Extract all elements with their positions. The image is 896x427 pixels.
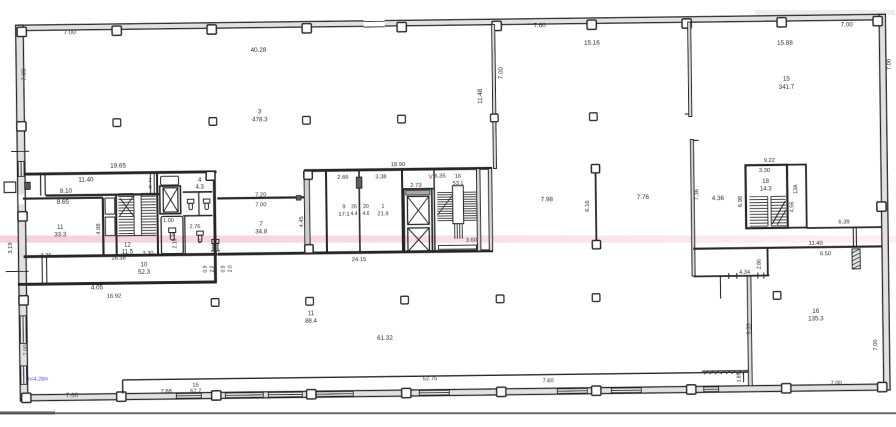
svg-text:135.3: 135.3 (808, 315, 824, 322)
svg-text:19.65: 19.65 (110, 163, 126, 170)
svg-text:2: 2 (149, 178, 152, 184)
svg-text:3.38: 3.38 (375, 174, 386, 180)
svg-text:24.15: 24.15 (352, 257, 367, 263)
svg-text:2.19: 2.19 (172, 238, 178, 248)
svg-text:7.60: 7.60 (534, 22, 547, 29)
svg-text:4.4: 4.4 (351, 211, 358, 217)
svg-text:1.00: 1.00 (163, 218, 174, 224)
svg-text:3.26: 3.26 (40, 253, 51, 259)
svg-text:6.50: 6.50 (820, 251, 831, 257)
svg-text:7.00: 7.00 (887, 59, 893, 70)
svg-text:21.9: 21.9 (377, 211, 388, 217)
svg-text:16: 16 (812, 308, 820, 315)
svg-text:3.19: 3.19 (8, 242, 14, 253)
svg-text:11: 11 (308, 311, 315, 317)
svg-text:52.75: 52.75 (423, 376, 438, 382)
svg-text:88.4: 88.4 (305, 319, 317, 325)
svg-text:10: 10 (140, 261, 148, 268)
svg-text:7.20: 7.20 (255, 192, 266, 198)
svg-text:0.9: 0.9 (221, 265, 227, 272)
svg-text:7.00: 7.00 (873, 339, 879, 350)
svg-text:14.3: 14.3 (760, 186, 772, 192)
svg-text:4.05: 4.05 (91, 284, 104, 291)
svg-text:9.33: 9.33 (746, 323, 752, 334)
svg-text:2.0: 2.0 (210, 265, 216, 272)
svg-text:9.22: 9.22 (764, 158, 775, 164)
svg-text:7.36: 7.36 (694, 189, 700, 200)
svg-text:7.00: 7.00 (64, 29, 77, 36)
svg-text:3.30: 3.30 (759, 168, 770, 174)
svg-text:61.32: 61.32 (377, 335, 393, 342)
svg-text:53.1: 53.1 (453, 181, 464, 187)
svg-text:h=4.28m: h=4.28m (28, 377, 48, 383)
svg-text:12: 12 (124, 243, 131, 249)
svg-text:11.40: 11.40 (809, 241, 823, 247)
svg-text:7.98: 7.98 (541, 196, 554, 203)
svg-text:11.48: 11.48 (477, 88, 484, 104)
svg-text:4.3: 4.3 (195, 185, 204, 191)
svg-text:33.3: 33.3 (54, 231, 67, 238)
svg-text:4.34: 4.34 (739, 270, 750, 276)
svg-text:7.00: 7.00 (831, 380, 842, 386)
svg-text:V: V (428, 174, 433, 181)
svg-text:16: 16 (455, 174, 461, 180)
svg-text:0.9: 0.9 (203, 265, 209, 272)
svg-text:7.60: 7.60 (542, 378, 553, 384)
svg-text:6.39: 6.39 (838, 219, 849, 225)
svg-text:52.3: 52.3 (138, 269, 151, 276)
svg-text:17.1: 17.1 (338, 212, 349, 218)
svg-text:13А: 13А (793, 184, 799, 194)
svg-text:11: 11 (57, 224, 64, 231)
svg-text:7.00: 7.00 (21, 68, 28, 81)
svg-text:6: 6 (198, 239, 201, 245)
svg-text:16.38: 16.38 (111, 256, 126, 262)
svg-text:34.8: 34.8 (255, 228, 268, 235)
svg-text:4.88: 4.88 (96, 223, 102, 234)
svg-text:4.45: 4.45 (299, 216, 305, 227)
svg-text:8.65: 8.65 (57, 199, 70, 206)
svg-text:6: 6 (149, 185, 152, 191)
svg-text:4.56: 4.56 (789, 202, 795, 213)
svg-text:26: 26 (351, 204, 357, 210)
svg-text:11.40: 11.40 (78, 176, 94, 183)
svg-text:7.60: 7.60 (66, 392, 79, 399)
svg-text:8.10: 8.10 (60, 188, 73, 195)
svg-text:9: 9 (342, 204, 345, 210)
svg-text:2.73: 2.73 (410, 183, 421, 189)
svg-text:7.00: 7.00 (255, 202, 266, 208)
svg-text:15.16: 15.16 (584, 39, 600, 46)
svg-text:18: 18 (762, 179, 769, 185)
svg-text:16.92: 16.92 (107, 294, 122, 300)
svg-text:6.98: 6.98 (738, 196, 744, 207)
svg-text:6.16: 6.16 (585, 200, 591, 211)
svg-text:1: 1 (381, 204, 384, 210)
svg-text:7.00: 7.00 (498, 66, 505, 79)
svg-text:7.00: 7.00 (23, 344, 29, 355)
svg-text:6.35: 6.35 (434, 173, 445, 179)
svg-text:67.7: 67.7 (190, 389, 201, 395)
svg-text:478.3: 478.3 (252, 116, 268, 123)
svg-text:15: 15 (783, 76, 791, 83)
svg-text:20: 20 (363, 204, 369, 210)
svg-text:2.86: 2.86 (757, 259, 763, 269)
svg-text:3: 3 (171, 232, 174, 238)
svg-text:7.00: 7.00 (841, 21, 854, 28)
svg-text:1.85: 1.85 (737, 372, 743, 382)
svg-text:341.7: 341.7 (779, 84, 795, 91)
svg-text:7.88: 7.88 (161, 389, 172, 395)
svg-text:7.76: 7.76 (637, 194, 650, 201)
svg-text:2.76: 2.76 (189, 224, 200, 230)
svg-text:2.0: 2.0 (228, 265, 234, 272)
svg-text:15.88: 15.88 (777, 40, 793, 47)
svg-text:40.28: 40.28 (251, 47, 267, 54)
svg-text:3.30: 3.30 (143, 251, 154, 257)
svg-text:4.6: 4.6 (363, 211, 370, 217)
svg-text:3.60: 3.60 (466, 237, 477, 243)
svg-text:2.66: 2.66 (337, 175, 348, 181)
svg-text:4.36: 4.36 (712, 195, 725, 202)
svg-text:18.90: 18.90 (391, 162, 406, 168)
